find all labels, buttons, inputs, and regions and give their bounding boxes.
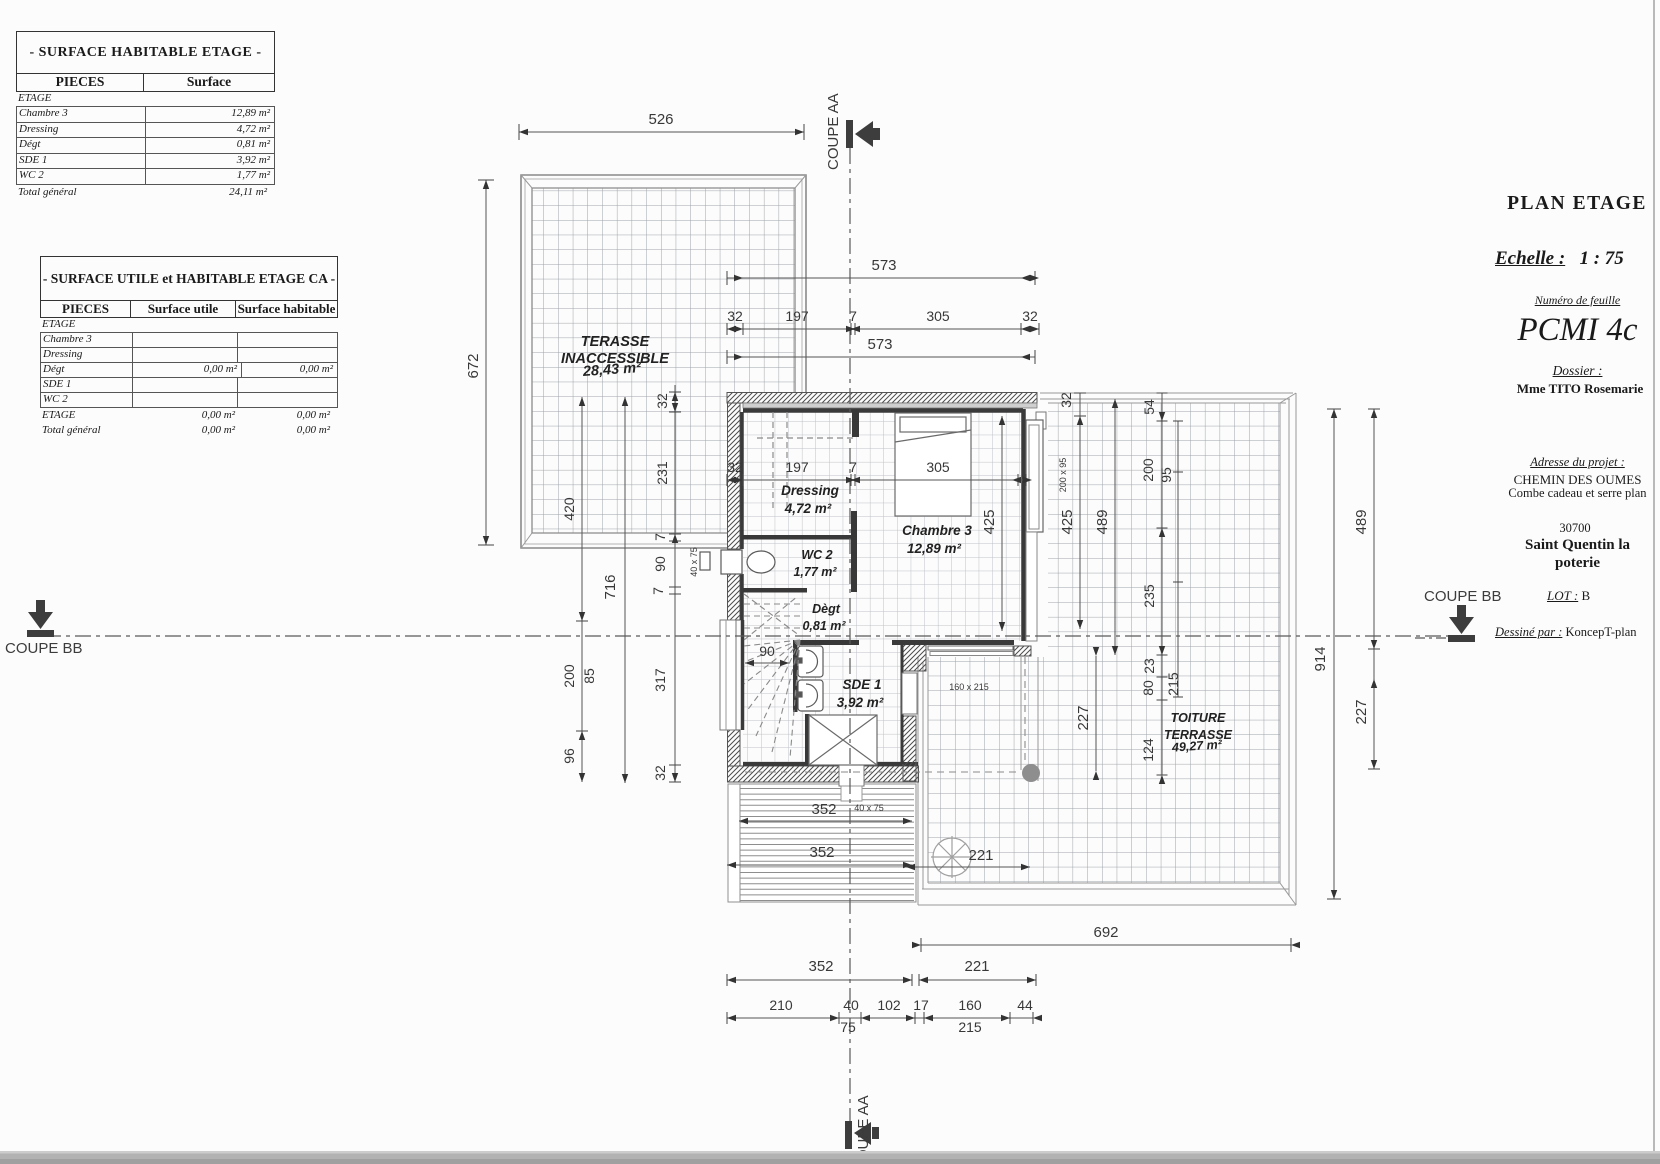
svg-text:32: 32: [727, 308, 743, 324]
svg-text:Dressing: Dressing: [781, 483, 840, 498]
svg-text:352: 352: [808, 958, 833, 975]
svg-text:425: 425: [981, 509, 998, 534]
svg-text:420: 420: [561, 497, 577, 521]
svg-text:200: 200: [1140, 458, 1156, 482]
svg-text:90: 90: [759, 643, 775, 659]
svg-text:3,92 m²: 3,92 m²: [837, 695, 884, 710]
svg-text:4,72 m²: 4,72 m²: [784, 501, 832, 516]
svg-text:526: 526: [648, 111, 673, 128]
svg-text:425: 425: [1059, 509, 1076, 534]
svg-text:227: 227: [1353, 699, 1370, 724]
svg-text:573: 573: [867, 336, 892, 353]
svg-text:32: 32: [654, 393, 670, 409]
svg-text:102: 102: [877, 997, 901, 1013]
svg-text:914: 914: [1312, 646, 1329, 671]
svg-text:7: 7: [652, 533, 668, 541]
svg-text:TOITURE: TOITURE: [1171, 711, 1226, 725]
svg-text:317: 317: [652, 668, 668, 692]
svg-text:80: 80: [1140, 680, 1156, 696]
svg-text:COUPE BB: COUPE BB: [5, 640, 83, 657]
svg-text:32: 32: [1022, 308, 1038, 324]
svg-text:WC 2: WC 2: [801, 548, 832, 562]
svg-text:23: 23: [1141, 658, 1157, 674]
svg-text:90: 90: [652, 556, 668, 572]
svg-text:197: 197: [785, 308, 809, 324]
svg-text:44: 44: [1017, 997, 1033, 1013]
svg-text:COUPE AA: COUPE AA: [825, 93, 842, 170]
svg-text:17: 17: [913, 997, 929, 1013]
svg-text:124: 124: [1140, 738, 1156, 762]
svg-text:489: 489: [1094, 509, 1111, 534]
svg-text:96: 96: [561, 748, 577, 764]
svg-text:COUPE BB: COUPE BB: [1424, 588, 1502, 605]
svg-text:221: 221: [964, 958, 989, 975]
svg-text:Dègt: Dègt: [812, 602, 841, 616]
svg-text:12,89 m²: 12,89 m²: [907, 541, 962, 556]
svg-text:200 x 95: 200 x 95: [1058, 458, 1068, 493]
svg-text:160: 160: [958, 997, 982, 1013]
svg-text:215: 215: [958, 1019, 982, 1035]
svg-text:352: 352: [811, 801, 836, 818]
svg-text:0,81 m²: 0,81 m²: [802, 619, 846, 633]
svg-text:215: 215: [1165, 672, 1181, 696]
svg-text:7: 7: [849, 308, 857, 324]
svg-text:227: 227: [1075, 705, 1092, 730]
svg-text:7: 7: [650, 587, 666, 595]
svg-text:32: 32: [1058, 392, 1074, 408]
svg-text:32: 32: [727, 459, 743, 475]
svg-text:210: 210: [769, 997, 793, 1013]
svg-text:40 x 75: 40 x 75: [854, 803, 884, 813]
svg-text:352: 352: [809, 844, 834, 861]
svg-text:489: 489: [1353, 509, 1370, 534]
svg-text:Chambre 3: Chambre 3: [902, 523, 972, 538]
svg-text:573: 573: [871, 257, 896, 274]
svg-text:40: 40: [843, 997, 859, 1013]
svg-text:1,77 m²: 1,77 m²: [793, 565, 837, 579]
svg-text:32: 32: [652, 765, 668, 781]
svg-text:54: 54: [1141, 399, 1157, 415]
svg-text:200: 200: [561, 664, 577, 688]
svg-text:716: 716: [602, 574, 619, 599]
svg-text:231: 231: [654, 461, 670, 485]
svg-text:305: 305: [926, 459, 950, 475]
svg-text:305: 305: [926, 308, 950, 324]
svg-text:75: 75: [840, 1019, 856, 1035]
svg-text:TERASSE: TERASSE: [581, 334, 651, 350]
svg-text:SDE 1: SDE 1: [842, 677, 881, 692]
svg-text:235: 235: [1141, 584, 1157, 608]
svg-text:7: 7: [849, 459, 857, 475]
svg-text:692: 692: [1093, 924, 1118, 941]
svg-text:85: 85: [581, 668, 597, 684]
svg-text:672: 672: [465, 353, 482, 378]
svg-text:40 x 75: 40 x 75: [689, 547, 699, 577]
svg-text:160 x 215: 160 x 215: [949, 682, 989, 692]
svg-text:197: 197: [785, 459, 809, 475]
svg-text:221: 221: [968, 847, 993, 864]
svg-text:95: 95: [1158, 467, 1174, 483]
